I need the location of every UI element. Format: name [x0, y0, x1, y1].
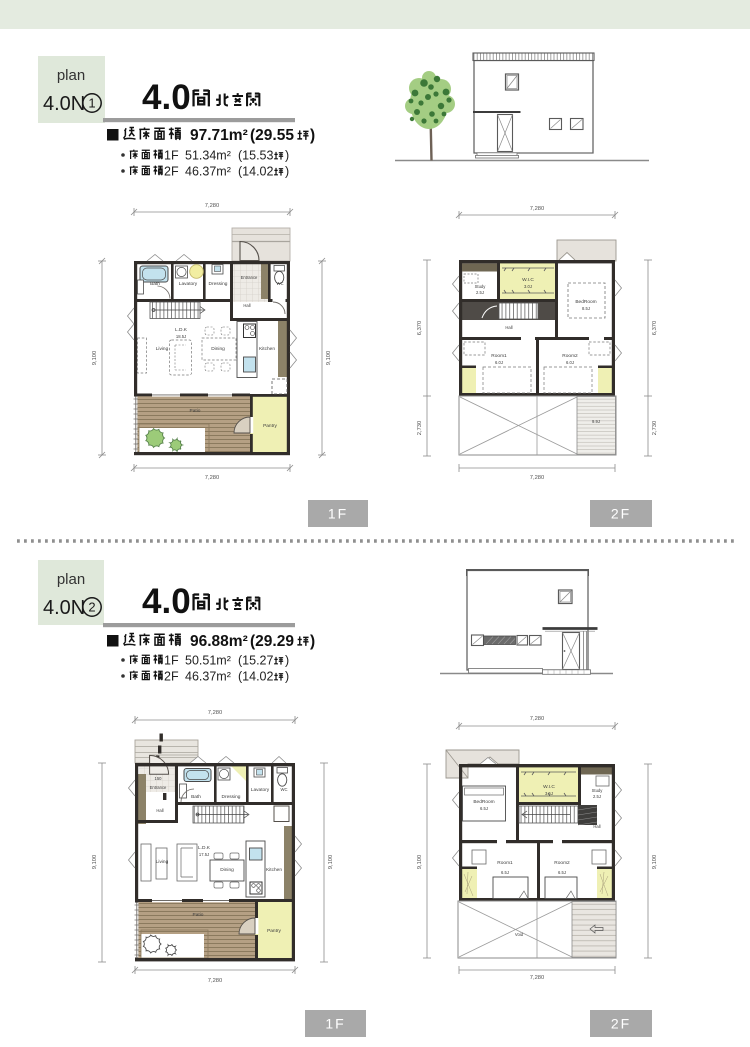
svg-text:7,280: 7,280 [530, 475, 545, 481]
svg-text:3.0J: 3.0J [524, 284, 532, 289]
svg-text:Study: Study [475, 284, 487, 289]
svg-text:9,100: 9,100 [92, 351, 98, 366]
svg-text:W.I.C: W.I.C [522, 277, 534, 283]
svg-text:6.0J: 6.0J [566, 360, 574, 365]
svg-text:150: 150 [155, 776, 163, 781]
svg-text:): ) [285, 654, 289, 668]
svg-text:(14.02: (14.02 [238, 165, 273, 179]
svg-text:(15.53: (15.53 [238, 149, 273, 163]
svg-text:Kitchen: Kitchen [266, 867, 282, 873]
svg-text:2.5J: 2.5J [593, 794, 601, 799]
svg-text:(15.27: (15.27 [238, 654, 273, 668]
svg-text:7,280: 7,280 [530, 206, 545, 212]
svg-text:9,100: 9,100 [326, 351, 332, 366]
svg-text:Lavatory: Lavatory [179, 281, 198, 287]
svg-text:Hall: Hall [505, 325, 512, 330]
svg-text:4.0: 4.0 [142, 582, 191, 621]
svg-text:L.D.K: L.D.K [198, 845, 211, 851]
svg-text:W.I.C: W.I.C [543, 784, 555, 790]
svg-text:6.5J: 6.5J [558, 870, 566, 875]
svg-text:96.88m²: 96.88m² [190, 633, 248, 650]
svg-text:Kitchen: Kitchen [259, 346, 275, 352]
svg-text:17.5J: 17.5J [199, 852, 209, 857]
svg-text:Dining: Dining [220, 867, 234, 873]
svg-text:): ) [285, 149, 289, 163]
svg-text:2F: 2F [611, 1016, 631, 1032]
svg-text:2,730: 2,730 [652, 421, 658, 436]
svg-text:7,280: 7,280 [208, 710, 223, 716]
svg-text:6.0J: 6.0J [495, 360, 503, 365]
svg-text:8.5J: 8.5J [582, 306, 590, 311]
svg-text:9,100: 9,100 [92, 855, 98, 870]
svg-text:Patio: Patio [190, 408, 201, 414]
svg-text:1F: 1F [328, 506, 348, 522]
svg-text:9,100: 9,100 [417, 855, 423, 870]
svg-text:1F: 1F [325, 1016, 345, 1032]
svg-text:Lavatory: Lavatory [251, 787, 270, 793]
svg-text:46.37m²: 46.37m² [185, 670, 231, 684]
svg-text:4.0N: 4.0N [43, 597, 85, 619]
svg-text:97.71m²: 97.71m² [190, 127, 248, 144]
svg-text:2F: 2F [164, 165, 179, 179]
svg-text:2F: 2F [611, 506, 631, 522]
svg-text:(29.29: (29.29 [250, 633, 294, 650]
svg-text:Void: Void [515, 932, 524, 937]
svg-text:1F: 1F [164, 149, 179, 163]
svg-text:): ) [285, 165, 289, 179]
svg-text:4.0N: 4.0N [43, 93, 85, 115]
svg-text:6.5J: 6.5J [501, 870, 509, 875]
svg-text:Hall: Hall [593, 824, 600, 829]
svg-text:Room2: Room2 [562, 353, 578, 359]
svg-text:Room1: Room1 [497, 860, 513, 866]
svg-text:): ) [285, 670, 289, 684]
svg-text:BedRoom: BedRoom [473, 799, 494, 805]
svg-text:7,280: 7,280 [530, 716, 545, 722]
svg-text:Room1: Room1 [491, 353, 507, 359]
svg-text:9.9J: 9.9J [592, 419, 600, 424]
svg-text:7,280: 7,280 [205, 203, 220, 209]
svg-text:2: 2 [88, 600, 95, 615]
svg-text:1: 1 [88, 96, 95, 111]
svg-text:Entrance: Entrance [241, 275, 258, 280]
svg-text:50.51m²: 50.51m² [185, 654, 231, 668]
svg-text:(14.02: (14.02 [238, 670, 273, 684]
svg-text:BedRoom: BedRoom [575, 299, 596, 305]
svg-text:18.5J: 18.5J [176, 334, 186, 339]
svg-text:Living: Living [156, 859, 169, 865]
svg-text:7,280: 7,280 [530, 975, 545, 981]
svg-text:Living: Living [156, 346, 169, 352]
svg-text:2F: 2F [164, 670, 179, 684]
svg-text:Dressing: Dressing [209, 281, 228, 287]
svg-text:6.5J: 6.5J [480, 806, 488, 811]
svg-text:): ) [310, 127, 315, 144]
svg-text:2,730: 2,730 [417, 421, 423, 436]
svg-text:7,280: 7,280 [205, 475, 220, 481]
svg-text:6,370: 6,370 [417, 321, 423, 336]
svg-text:Room2: Room2 [554, 860, 570, 866]
svg-text:2.5J: 2.5J [476, 290, 484, 295]
svg-text:WC: WC [281, 787, 288, 792]
svg-text:Entrance: Entrance [150, 785, 167, 790]
svg-text:Pantry: Pantry [263, 423, 277, 429]
svg-text:Dressing: Dressing [222, 794, 241, 800]
svg-text:Bath: Bath [191, 794, 201, 800]
svg-text:9,100: 9,100 [328, 855, 334, 870]
svg-text:WC: WC [277, 281, 284, 286]
svg-text:51.34m²: 51.34m² [185, 149, 231, 163]
svg-text:9,100: 9,100 [652, 855, 658, 870]
svg-text:Pantry: Pantry [267, 928, 281, 934]
svg-text:4.0: 4.0 [142, 78, 191, 117]
svg-text:Study: Study [592, 788, 604, 793]
svg-text:Hall: Hall [243, 303, 250, 308]
svg-text:L.D.K: L.D.K [175, 327, 188, 333]
svg-text:): ) [310, 633, 315, 650]
svg-text:(29.55: (29.55 [250, 127, 294, 144]
svg-text:plan: plan [57, 67, 85, 84]
svg-text:Dining: Dining [211, 346, 225, 352]
svg-text:3.5J: 3.5J [545, 791, 553, 796]
svg-text:Bath: Bath [150, 281, 160, 287]
svg-text:1F: 1F [164, 654, 179, 668]
svg-text:plan: plan [57, 571, 85, 588]
svg-text:7,280: 7,280 [208, 978, 223, 984]
svg-text:Patio: Patio [193, 912, 204, 918]
svg-text:6,370: 6,370 [652, 321, 658, 336]
svg-text:Hall: Hall [156, 808, 163, 813]
svg-text:46.37m²: 46.37m² [185, 165, 231, 179]
